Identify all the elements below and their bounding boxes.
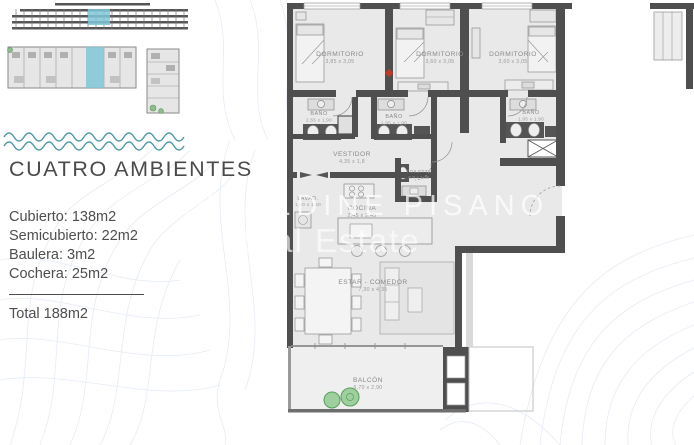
room-label-bano-1: BAÑO [310,110,327,117]
room-dims-bano-3: 1,95 x 1,90 [518,117,544,122]
apartment-floor-plan: DORMITORIO 3,85 x 3,05 DORMITORIO 3,60 x… [287,3,694,413]
room-label-dormitorio-1: DORMITORIO [316,51,364,58]
room-label-bano-2: BAÑO [385,113,402,120]
room-dims-estar-comedor: 7,30 x 4,35 [359,287,388,293]
living-furniture [380,262,454,334]
room-dims-balcon: 6,70 x 2,90 [354,385,383,391]
room-dims-toilette: 0,9 x 1,35 [409,175,430,180]
room-dims-lavadero: 1,50 x 1,60 [295,202,321,207]
windows [304,3,532,9]
room-dims-dormitorio-1: 3,85 x 3,05 [326,59,355,65]
room-dims-bano-1: 2,55 x 1,90 [306,118,332,123]
page-title: CUATRO AMBIENTES [9,157,253,182]
room-label-bano-3: BAÑO [522,109,539,116]
area-line-baulera: Baulera: 3m2 [9,246,253,265]
room-dims-vestidor: 4,35 x 1,8 [339,159,365,165]
site-side-plan-thumbnail [147,49,179,113]
room-dims-dormitorio-3: 3,60 x 3,05 [499,59,528,65]
room-label-dormitorio-2: DORMITORIO [416,51,464,58]
room-dims-bano-2: 1,95 x 1,90 [381,121,407,126]
room-dims-dormitorio-2: 3,60 x 3,05 [426,59,455,65]
highlighted-unit-plan [86,47,104,88]
laundry-fixtures [295,212,311,228]
total-area: Total 188m2 [9,306,253,322]
floor-plan-page: DORMITORIO 3,85 x 3,05 DORMITORIO 3,60 x… [0,0,694,445]
highlighted-unit-elevation [88,9,110,25]
info-panel: CUATRO AMBIENTES Cubierto: 138m2 Semicub… [9,157,253,322]
room-label-vestidor: VESTIDOR [333,151,371,158]
room-label-dormitorio-3: DORMITORIO [489,51,537,58]
room-label-cocina: COCINA [348,205,377,212]
room-label-estar-comedor: ESTAR - COMEDOR [338,279,407,286]
service-shaft [528,140,558,157]
site-key-plan-thumbnail [8,47,137,88]
room-label-balcon: BALCÓN [353,375,383,384]
dining-set [295,258,361,344]
area-line-cubierto: Cubierto: 138m2 [9,208,253,227]
area-line-semicubierto: Semicubierto: 22m2 [9,227,253,246]
area-line-cochera: Cochera: 25m2 [9,265,253,284]
area-list: Cubierto: 138m2 Semicubierto: 22m2 Baule… [9,208,253,284]
room-label-toilette: TOILETTE [407,169,432,174]
wave-separator [4,133,184,150]
room-dims-cocina: 2,45 x 2,45 [348,213,377,219]
total-divider [9,294,144,295]
site-elevation-thumbnail [12,3,188,30]
